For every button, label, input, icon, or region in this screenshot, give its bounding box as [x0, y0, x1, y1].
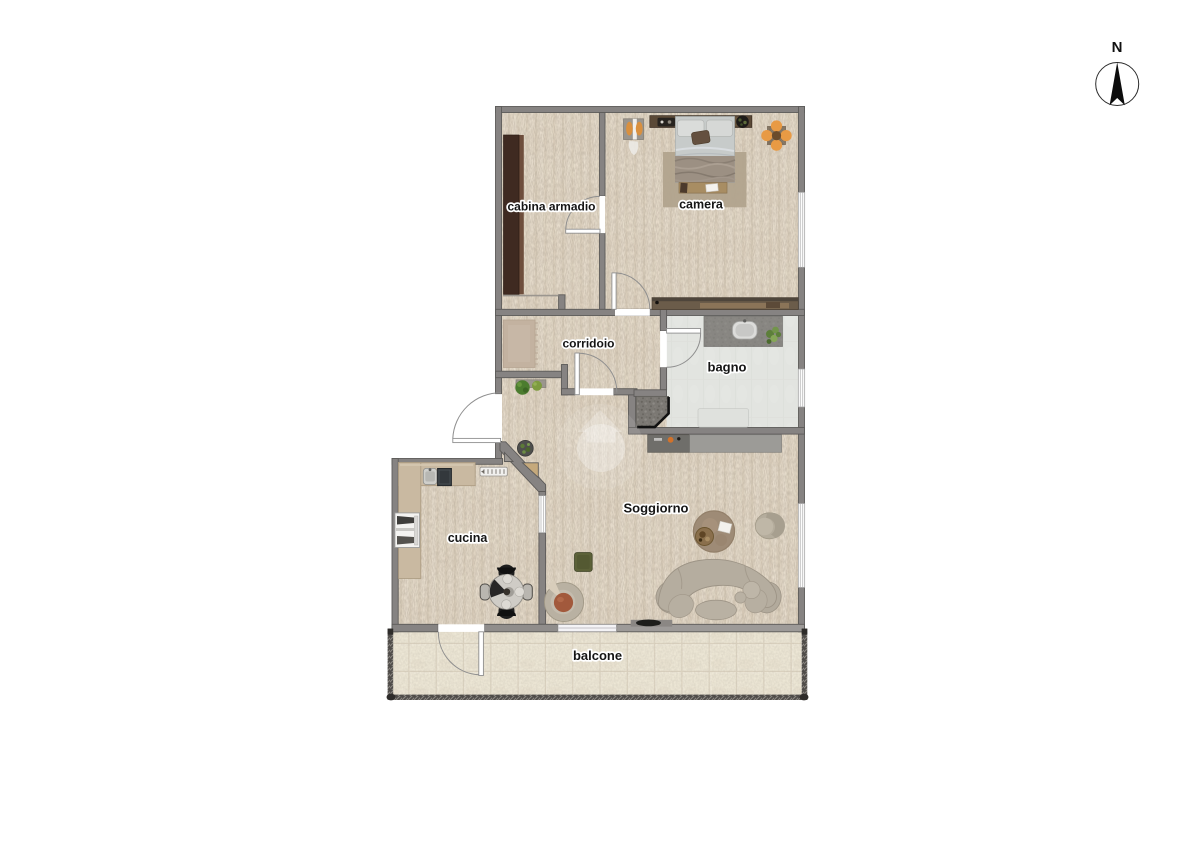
- svg-text:camera: camera: [679, 198, 724, 212]
- svg-text:corridoio: corridoio: [562, 337, 614, 351]
- svg-text:cabina armadio: cabina armadio: [507, 200, 595, 214]
- svg-text:bagno: bagno: [708, 360, 747, 375]
- svg-text:Soggiorno: Soggiorno: [624, 501, 689, 516]
- svg-text:cucina: cucina: [448, 531, 489, 545]
- svg-text:balcone: balcone: [573, 648, 622, 663]
- svg-text:N: N: [1112, 39, 1123, 56]
